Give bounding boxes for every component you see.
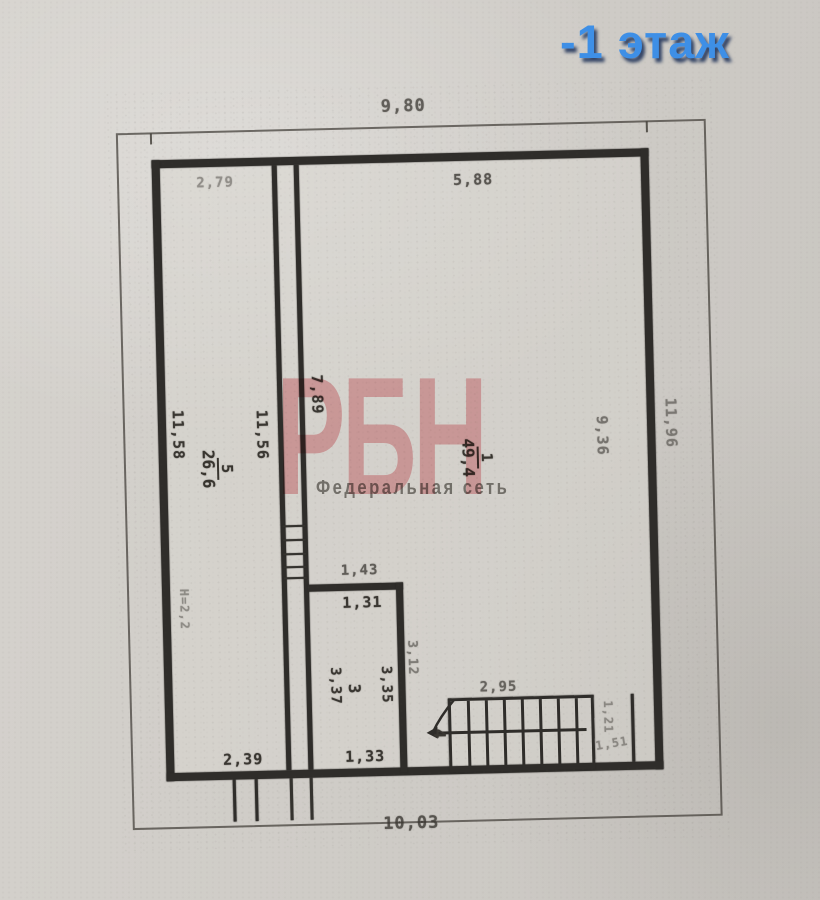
- dim-room1-right: 9,36: [592, 397, 612, 473]
- stair-riser: [485, 700, 489, 768]
- dim-room3-top-outer: 1,43: [329, 562, 389, 579]
- watermark-subtitle: Федеральная сеть: [316, 477, 509, 500]
- room5-number: 5: [217, 458, 235, 479]
- dim-room3-bottom: 1,33: [335, 747, 395, 766]
- dim-left-wall: 11,58: [168, 390, 188, 480]
- dim-right-wall: 11,96: [661, 378, 681, 468]
- dim-room1-top: 5,88: [438, 170, 508, 190]
- dimension-tick: [646, 121, 648, 132]
- dim-stairs-right: 1,21: [601, 691, 616, 741]
- dim-room3-top-inner: 1,31: [332, 593, 392, 612]
- dim-bottom-left: 2,39: [211, 750, 275, 770]
- dim-stairs-top: 2,95: [470, 678, 526, 695]
- dim-ceiling-height: Н=2,2: [176, 568, 192, 652]
- dim-room3-left: 3,37: [327, 654, 345, 718]
- stair-riser: [503, 700, 507, 768]
- dim-bottom-width: 10,03: [364, 812, 459, 834]
- floor-title: -1 этаж: [560, 14, 800, 69]
- dim-room3-wall-right: 3,12: [404, 629, 420, 687]
- stair-riser: [557, 699, 561, 767]
- stair-riser: [539, 699, 543, 767]
- dim-room3-right: 3,35: [378, 653, 396, 717]
- dimension-tick: [150, 133, 152, 144]
- dim-room1-top-left: 2,79: [185, 174, 245, 191]
- dim-top-width: 9,80: [358, 95, 448, 117]
- room4-number: 4: [430, 719, 450, 749]
- room5-area: 26,6: [199, 450, 218, 489]
- room5-label: 5 26,6: [196, 436, 238, 501]
- stair-riser: [521, 699, 525, 767]
- stair-riser: [575, 698, 579, 766]
- room3-number: 3: [345, 674, 365, 704]
- dim-corridor-left: 11,56: [252, 393, 272, 477]
